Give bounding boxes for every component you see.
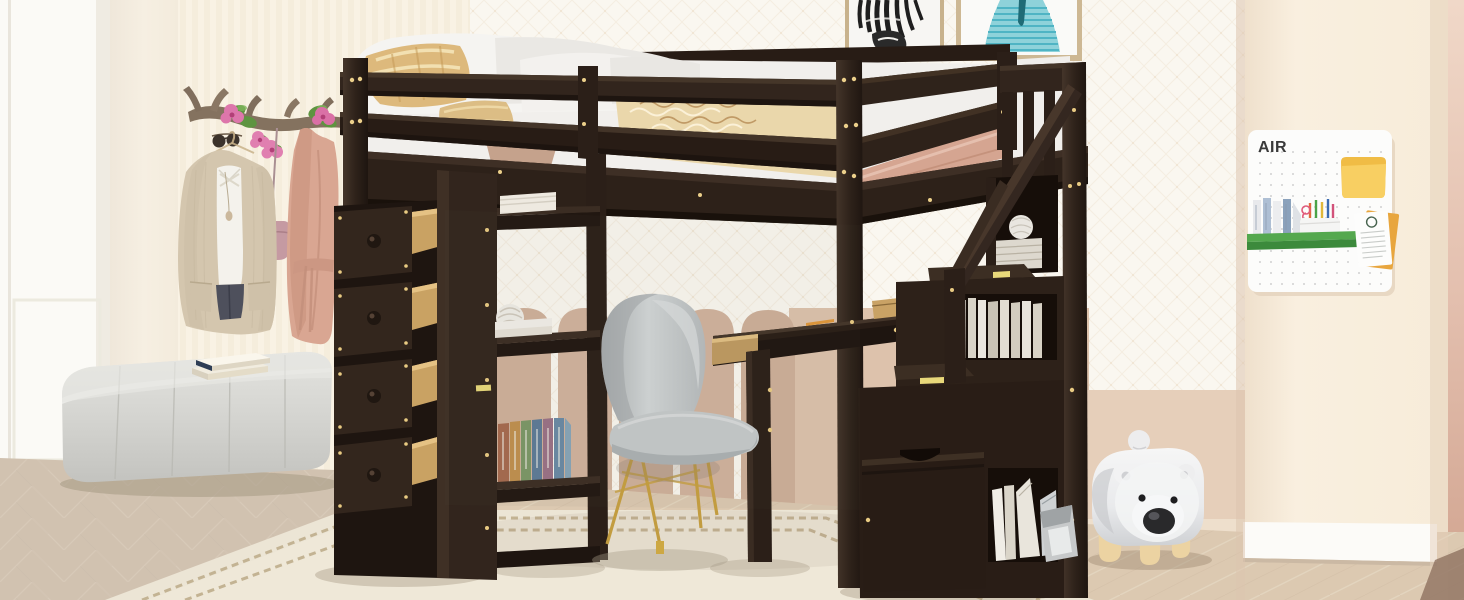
svg-text:AIR: AIR xyxy=(1258,139,1287,156)
